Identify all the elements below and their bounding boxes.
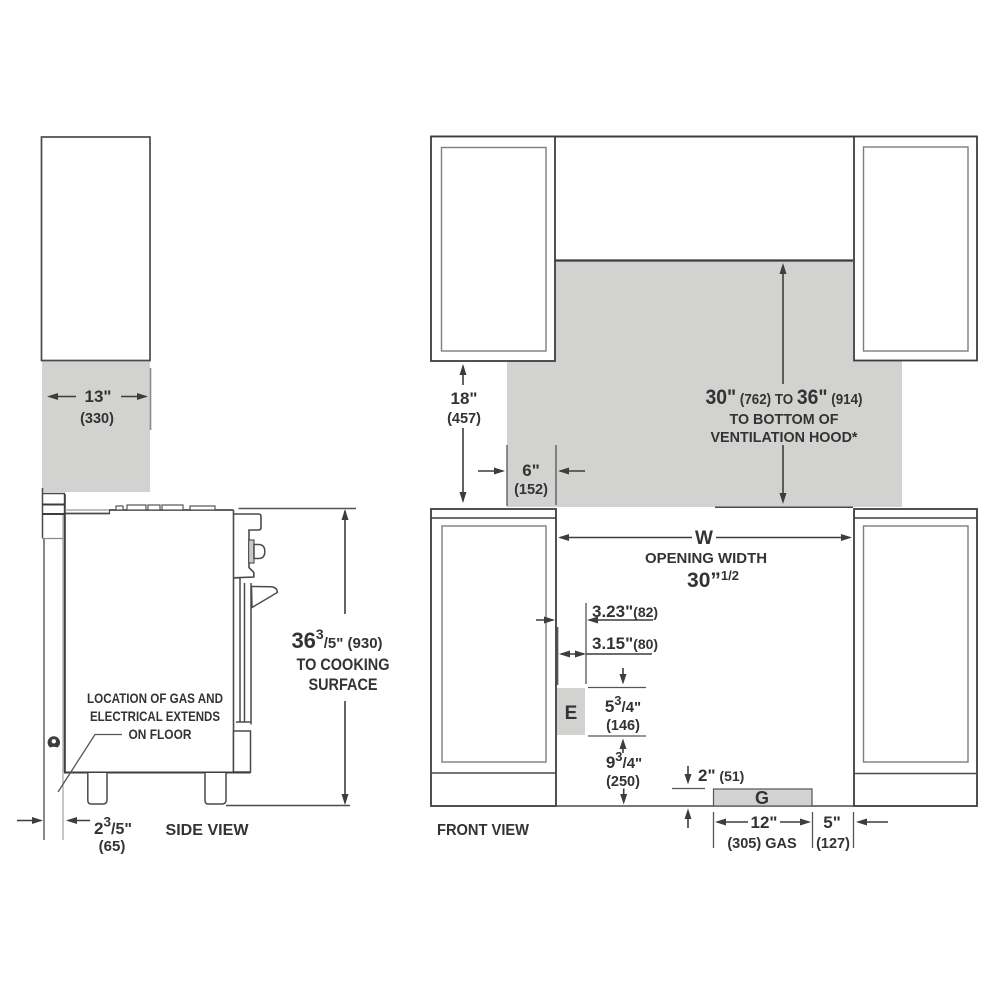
svg-text:12": 12" bbox=[751, 813, 778, 832]
svg-text:TO COOKING: TO COOKING bbox=[297, 655, 390, 674]
svg-text:3.23"(82): 3.23"(82) bbox=[592, 602, 658, 621]
svg-text:(330): (330) bbox=[80, 411, 114, 427]
svg-text:(127): (127) bbox=[816, 836, 850, 852]
svg-text:LOCATION OF GAS AND: LOCATION OF GAS AND bbox=[87, 690, 223, 706]
svg-text:3.15"(80): 3.15"(80) bbox=[592, 634, 658, 653]
svg-text:(250): (250) bbox=[606, 774, 640, 790]
svg-text:SURFACE: SURFACE bbox=[309, 675, 378, 694]
svg-text:(146): (146) bbox=[606, 718, 640, 734]
svg-text:W: W bbox=[695, 528, 713, 549]
svg-text:SIDE VIEW: SIDE VIEW bbox=[166, 822, 250, 839]
svg-text:(457): (457) bbox=[447, 411, 481, 427]
svg-text:13": 13" bbox=[85, 387, 112, 406]
svg-text:G: G bbox=[755, 788, 769, 808]
svg-text:18": 18" bbox=[451, 389, 478, 408]
svg-text:E: E bbox=[565, 703, 578, 724]
svg-text:(65): (65) bbox=[99, 838, 126, 855]
svg-text:ELECTRICAL EXTENDS: ELECTRICAL EXTENDS bbox=[90, 708, 220, 724]
svg-text:VENTILATION HOOD*: VENTILATION HOOD* bbox=[711, 429, 858, 446]
svg-text:2" (51): 2" (51) bbox=[698, 766, 744, 785]
svg-text:FRONT VIEW: FRONT VIEW bbox=[437, 822, 530, 839]
svg-text:(305) GAS: (305) GAS bbox=[727, 836, 797, 852]
svg-text:OPENING WIDTH: OPENING WIDTH bbox=[645, 550, 767, 567]
svg-text:5": 5" bbox=[823, 813, 841, 832]
svg-text:ON FLOOR: ON FLOOR bbox=[129, 726, 192, 742]
svg-text:(152): (152) bbox=[514, 482, 548, 498]
svg-text:TO BOTTOM OF: TO BOTTOM OF bbox=[730, 411, 839, 428]
svg-text:6": 6" bbox=[522, 461, 540, 480]
